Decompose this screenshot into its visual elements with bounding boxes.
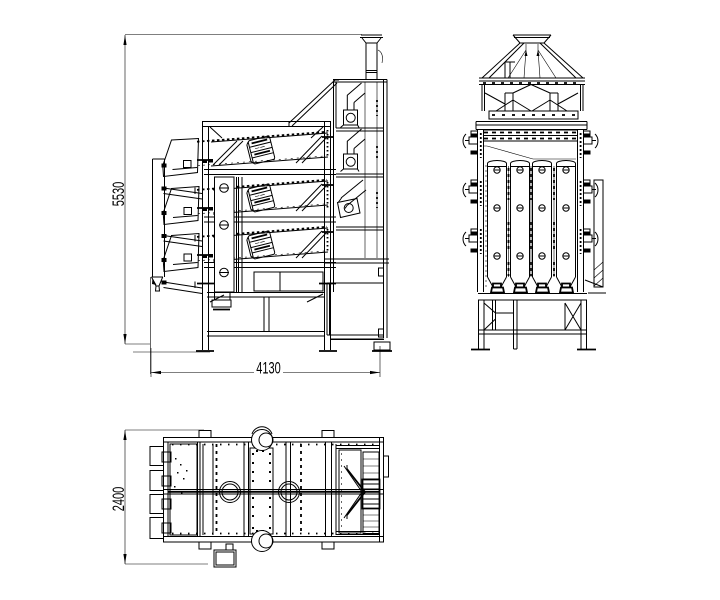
svg-text:4130: 4130 [256, 359, 281, 378]
svg-text:5530: 5530 [109, 182, 128, 207]
svg-text:2400: 2400 [109, 487, 128, 512]
